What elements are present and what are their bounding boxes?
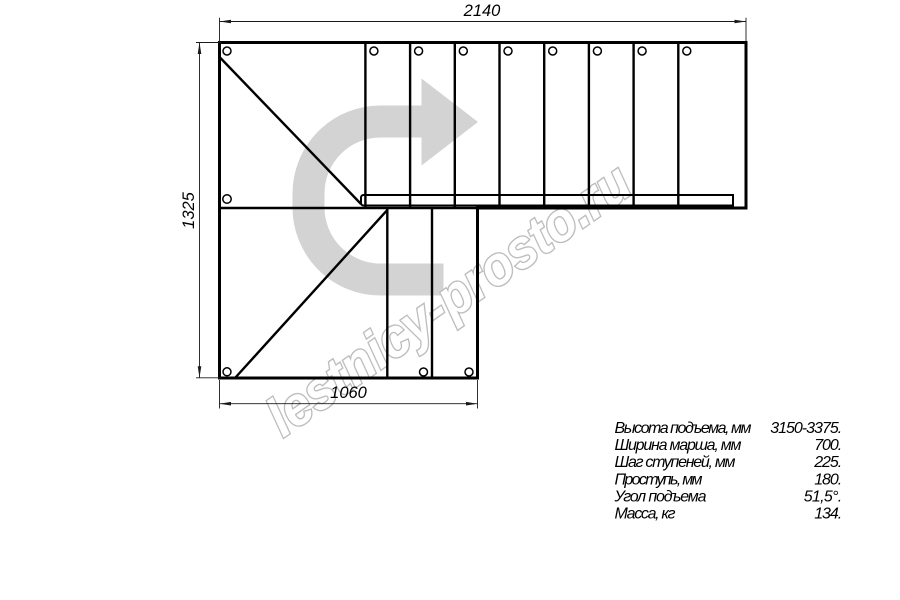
svg-text:225.: 225. — [813, 454, 842, 471]
svg-text:700.: 700. — [814, 437, 842, 454]
svg-text:Ширина марша, мм: Ширина марша, мм — [615, 437, 742, 454]
svg-text:134.: 134. — [814, 506, 842, 523]
svg-text:180.: 180. — [814, 471, 842, 488]
svg-text:Проступь, мм: Проступь, мм — [615, 471, 703, 488]
svg-text:Масса, кг: Масса, кг — [615, 506, 676, 523]
svg-text:Угол подъема: Угол подъема — [614, 488, 707, 505]
svg-text:1060: 1060 — [330, 384, 368, 402]
svg-text:Шаг ступеней, мм: Шаг ступеней, мм — [615, 454, 736, 471]
svg-text:51,5°.: 51,5°. — [804, 488, 843, 505]
svg-text:3150-3375.: 3150-3375. — [770, 420, 842, 437]
svg-text:2140: 2140 — [463, 2, 502, 20]
svg-text:Высота подъема, мм: Высота подъема, мм — [615, 420, 752, 437]
svg-text:1325: 1325 — [180, 191, 198, 229]
